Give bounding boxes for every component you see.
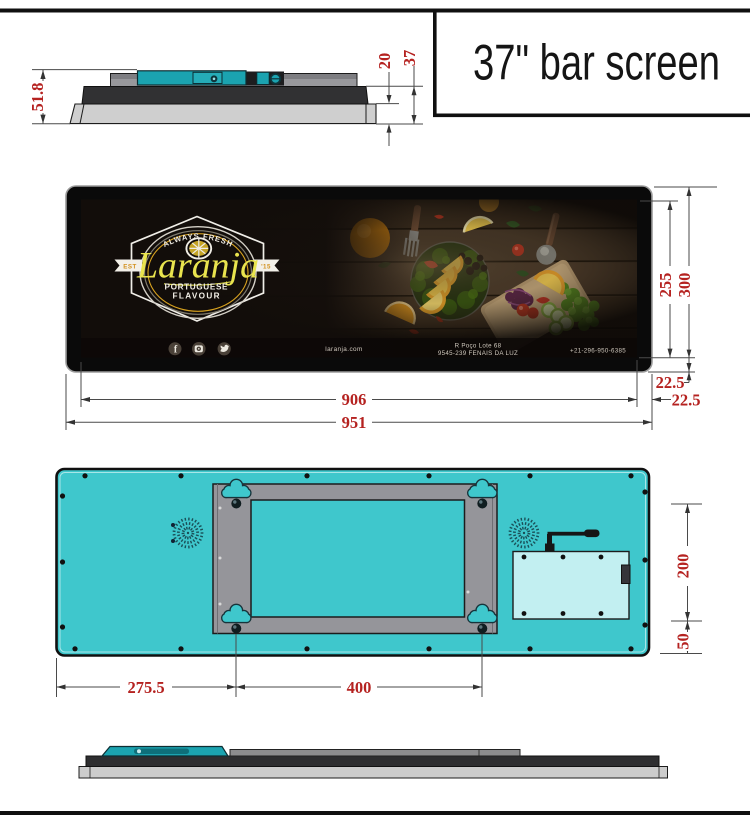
svg-text:255: 255 [656, 273, 675, 298]
svg-text:Laranja: Laranja [136, 246, 259, 287]
svg-text:PORTUGUESE: PORTUGUESE [165, 283, 230, 292]
svg-text:300: 300 [675, 273, 694, 298]
svg-text:+21-296-950-6385: +21-296-950-6385 [570, 348, 626, 355]
svg-text:37: 37 [400, 50, 419, 67]
svg-text:51.8: 51.8 [28, 83, 47, 112]
svg-text:20: 20 [375, 53, 394, 70]
svg-text:laranja.com: laranja.com [325, 346, 362, 353]
svg-text:906: 906 [342, 390, 367, 409]
svg-text:22.5: 22.5 [656, 373, 685, 392]
svg-text:'15: '15 [261, 263, 271, 270]
svg-text:951: 951 [342, 413, 367, 432]
svg-text:275.5: 275.5 [127, 678, 164, 697]
svg-text:200: 200 [674, 554, 693, 579]
svg-text:FLAVOUR: FLAVOUR [173, 292, 222, 301]
svg-text:9545-239 FENAIS DA LUZ: 9545-239 FENAIS DA LUZ [438, 350, 518, 357]
svg-text:R Poço Lote 68: R Poço Lote 68 [455, 343, 502, 350]
svg-text:22.5: 22.5 [672, 391, 701, 410]
svg-text:50: 50 [674, 633, 693, 650]
svg-text:EST: EST [123, 263, 137, 270]
svg-text:400: 400 [347, 678, 372, 697]
svg-text:37" bar screen: 37" bar screen [473, 35, 720, 91]
